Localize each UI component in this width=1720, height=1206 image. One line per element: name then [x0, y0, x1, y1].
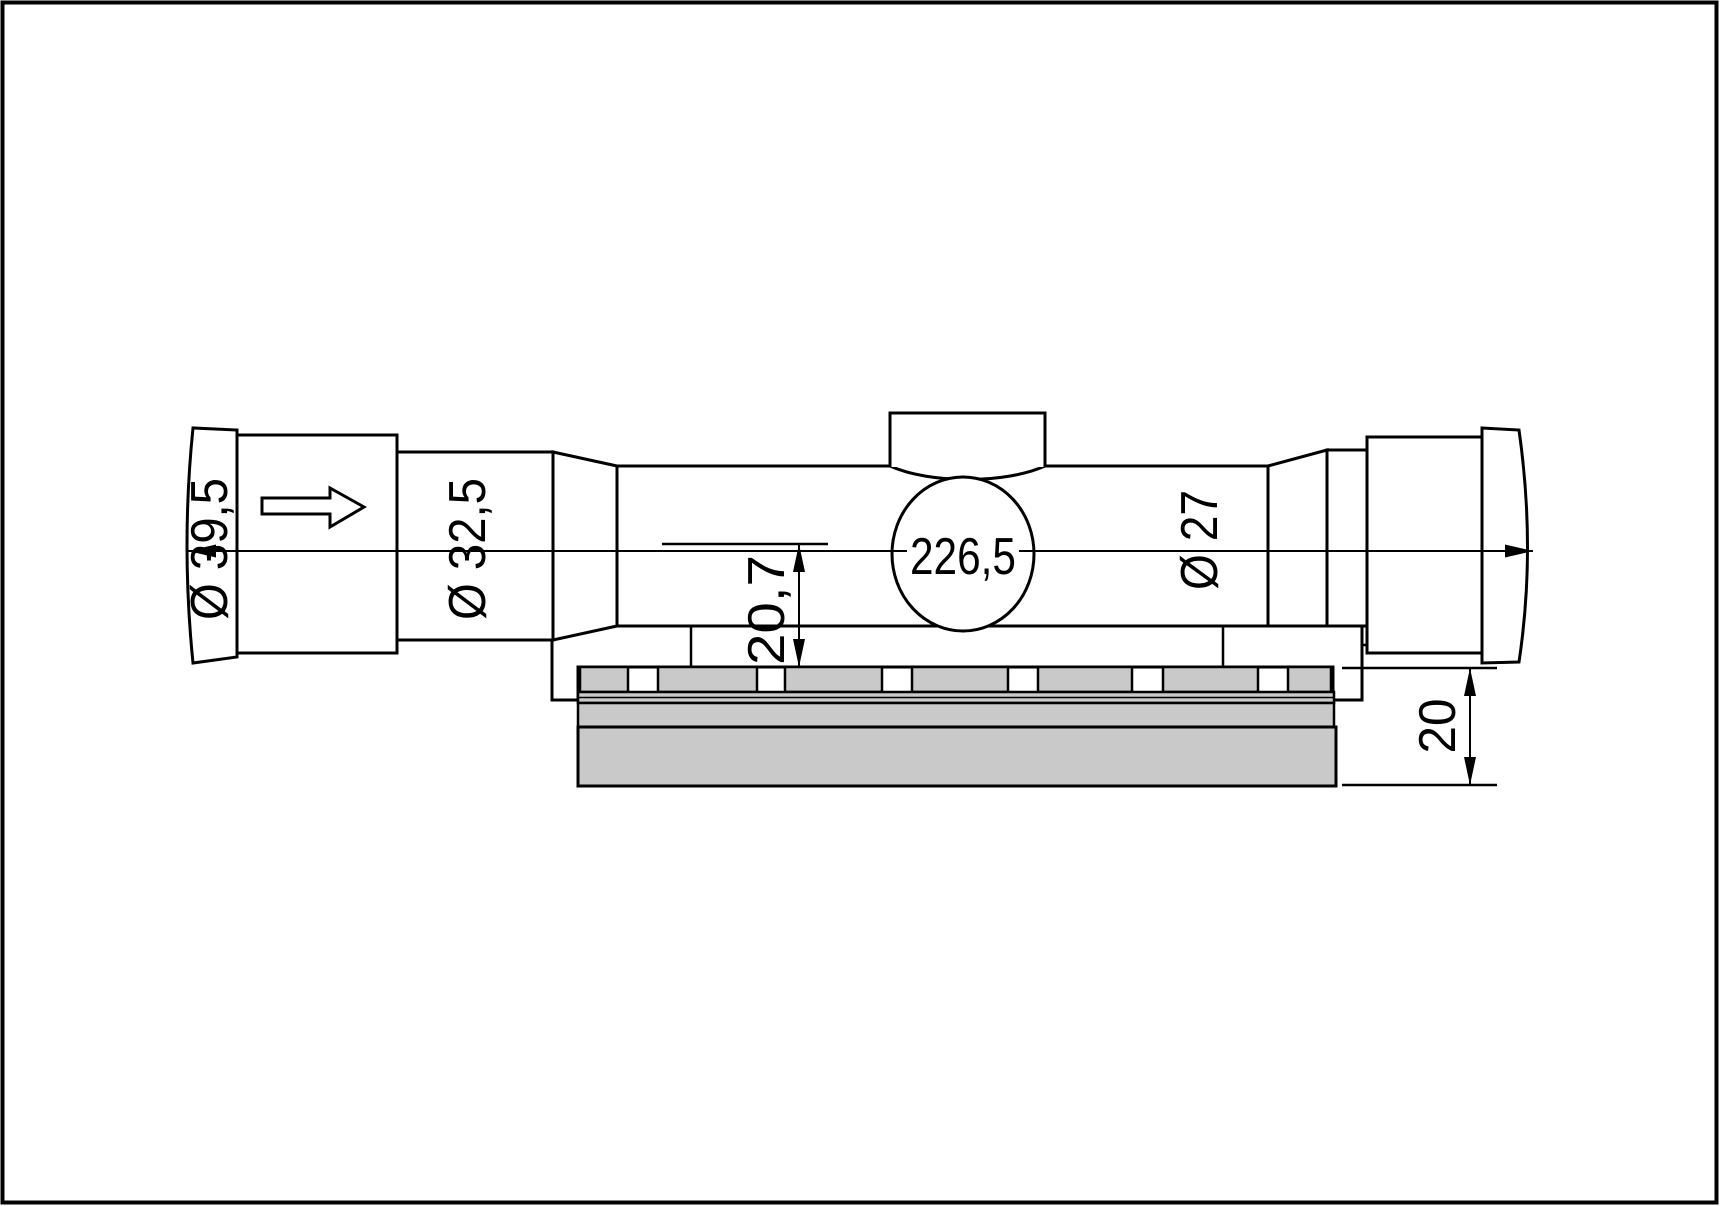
label-eyepiece-diameter: Ø 39,5 — [181, 478, 239, 620]
rail-teeth-row — [580, 667, 1331, 692]
eyepiece-housing — [237, 435, 397, 653]
label-axis-height: 20,7 — [738, 555, 796, 665]
rail-tooth — [1038, 667, 1132, 692]
rail-tooth — [1163, 667, 1258, 692]
rail-tooth — [658, 667, 757, 692]
objective-bell — [1367, 437, 1482, 653]
rail-body — [578, 692, 1336, 786]
objective-neck — [1327, 450, 1367, 626]
rail-tooth — [1288, 667, 1331, 692]
rail-layer-middle — [578, 703, 1334, 727]
rail-tooth — [912, 667, 1008, 692]
turret-housing — [890, 413, 1045, 467]
label-ocular-housing-diameter: Ø 32,5 — [439, 478, 497, 620]
label-mount-height: 20 — [1409, 699, 1467, 754]
label-main-tube-diameter: Ø 27 — [1171, 490, 1229, 590]
rail-tooth — [785, 667, 882, 692]
ocular-taper — [553, 452, 617, 640]
label-overall-length: 226,5 — [910, 528, 1016, 586]
rail-base-block — [578, 727, 1336, 786]
scope-technical-drawing: Ø 39,5 Ø 32,5 20,7 226,5 Ø 27 20 — [0, 0, 1720, 1206]
objective-taper — [1268, 450, 1327, 626]
objective-lens-cap — [1482, 428, 1528, 663]
rail-tooth — [580, 667, 628, 692]
